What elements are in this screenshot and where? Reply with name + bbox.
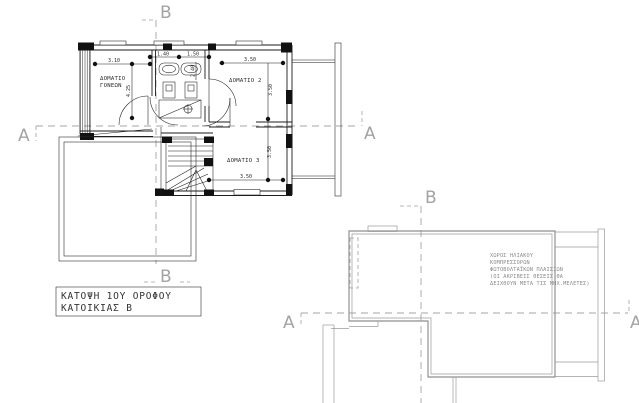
shower-tray xyxy=(159,100,201,118)
dim-3-50-room3-bottom: 3.50 xyxy=(240,174,252,180)
dim-3-50-room3-vertical: 3.50 xyxy=(267,146,273,158)
dim-4-25-vertical: 4.25 xyxy=(126,85,132,97)
toilet-right xyxy=(185,82,197,98)
drawing-title-line2: ΚΑΤΟΙΚΙΑΣ Β xyxy=(61,303,133,314)
room-label-parents-2: ΓΟΝΕΩΝ xyxy=(100,83,122,89)
glazed-wall-hatch xyxy=(80,50,90,134)
roof-dashed-shaft xyxy=(350,238,358,288)
toilet-left xyxy=(163,82,175,98)
roof-note: ΧΩΡΟΣ ΗΛΙΑΚΟΥ ΚΟΜΠΡΕΣΣΟΡΩΝ ΦΩΤΟΒΟΛΤΑΪΚΩΝ… xyxy=(490,253,590,287)
note-line-1: ΧΩΡΟΣ ΗΛΙΑΚΟΥ xyxy=(490,253,534,259)
section-marker-b-plan2: B xyxy=(425,188,437,208)
room-label-room3: ΔΟΜΑΤΙΟ 3 xyxy=(227,158,260,164)
section-marker-b-top: B xyxy=(160,3,172,23)
section-marker-a-right: A xyxy=(364,124,376,144)
dim-1-40: 1.40 xyxy=(157,52,169,58)
dim-3-50-room2-vertical: 3.50 xyxy=(268,84,274,96)
balcony-terrace xyxy=(59,129,196,261)
title-box: ΚΑΤΟΨΗ 1ΟΥ ΟΡΟΦΟΥ ΚΑΤΟΙΚΙΑΣ Β xyxy=(56,287,201,316)
note-line-4: (ΟΙ ΑΚΡΙΒΕΙΣ ΘΕΣΕΙΣ ΘΑ xyxy=(490,274,564,280)
cad-drawing-canvas: 3.10 1.40 1.50 3.50 4.25 2.40 3.50 3.50 … xyxy=(0,0,639,403)
pergola-right-plan1 xyxy=(292,43,341,196)
dim-3-10: 3.10 xyxy=(108,58,120,64)
dim-1-50: 1.50 xyxy=(187,52,199,58)
section-marker-a-plan2-right: A xyxy=(630,313,639,333)
roof-plan: ΧΩΡΟΣ ΗΛΙΑΚΟΥ ΚΟΜΠΡΕΣΣΟΡΩΝ ΦΩΤΟΒΟΛΤΑΪΚΩΝ… xyxy=(323,226,605,403)
washbasin-left xyxy=(159,63,179,75)
note-line-2: ΚΟΜΠΡΕΣΣΟΡΩΝ xyxy=(490,260,530,266)
section-marker-a-plan2-left: A xyxy=(283,313,295,333)
floor-plan-house-b: 3.10 1.40 1.50 3.50 4.25 2.40 3.50 3.50 … xyxy=(59,41,341,261)
pergola-right-plan2 xyxy=(555,229,605,381)
dim-2-40-vertical: 2.40 xyxy=(191,65,197,77)
note-line-3: ΦΩΤΟΒΟΛΤΑΪΚΩΝ ΠΛΑΙΣΙΩΝ xyxy=(490,266,563,273)
room-label-room2: ΔΟΜΑΤΙΟ 2 xyxy=(229,78,262,84)
room-label-parents-1: ΔΟΜΑΤΙΟ xyxy=(100,76,126,82)
drawing-title-line1: ΚΑΤΟΨΗ 1ΟΥ ΟΡΟΦΟΥ xyxy=(61,291,172,302)
staircase xyxy=(162,137,214,196)
pergola-left-plan2 xyxy=(323,325,334,403)
dim-3-50-top: 3.50 xyxy=(244,57,256,63)
section-marker-a-left: A xyxy=(18,126,30,146)
section-marker-b-bottom: B xyxy=(160,267,172,287)
drawing-svg: 3.10 1.40 1.50 3.50 4.25 2.40 3.50 3.50 … xyxy=(0,0,639,403)
note-line-5: ΔΕΙΧΘΟΥΝ ΜΕΤΑ ΤΙΣ ΜΗΧ.ΜΕΛΕΤΕΣ) xyxy=(490,281,590,287)
door-swings xyxy=(119,79,236,126)
